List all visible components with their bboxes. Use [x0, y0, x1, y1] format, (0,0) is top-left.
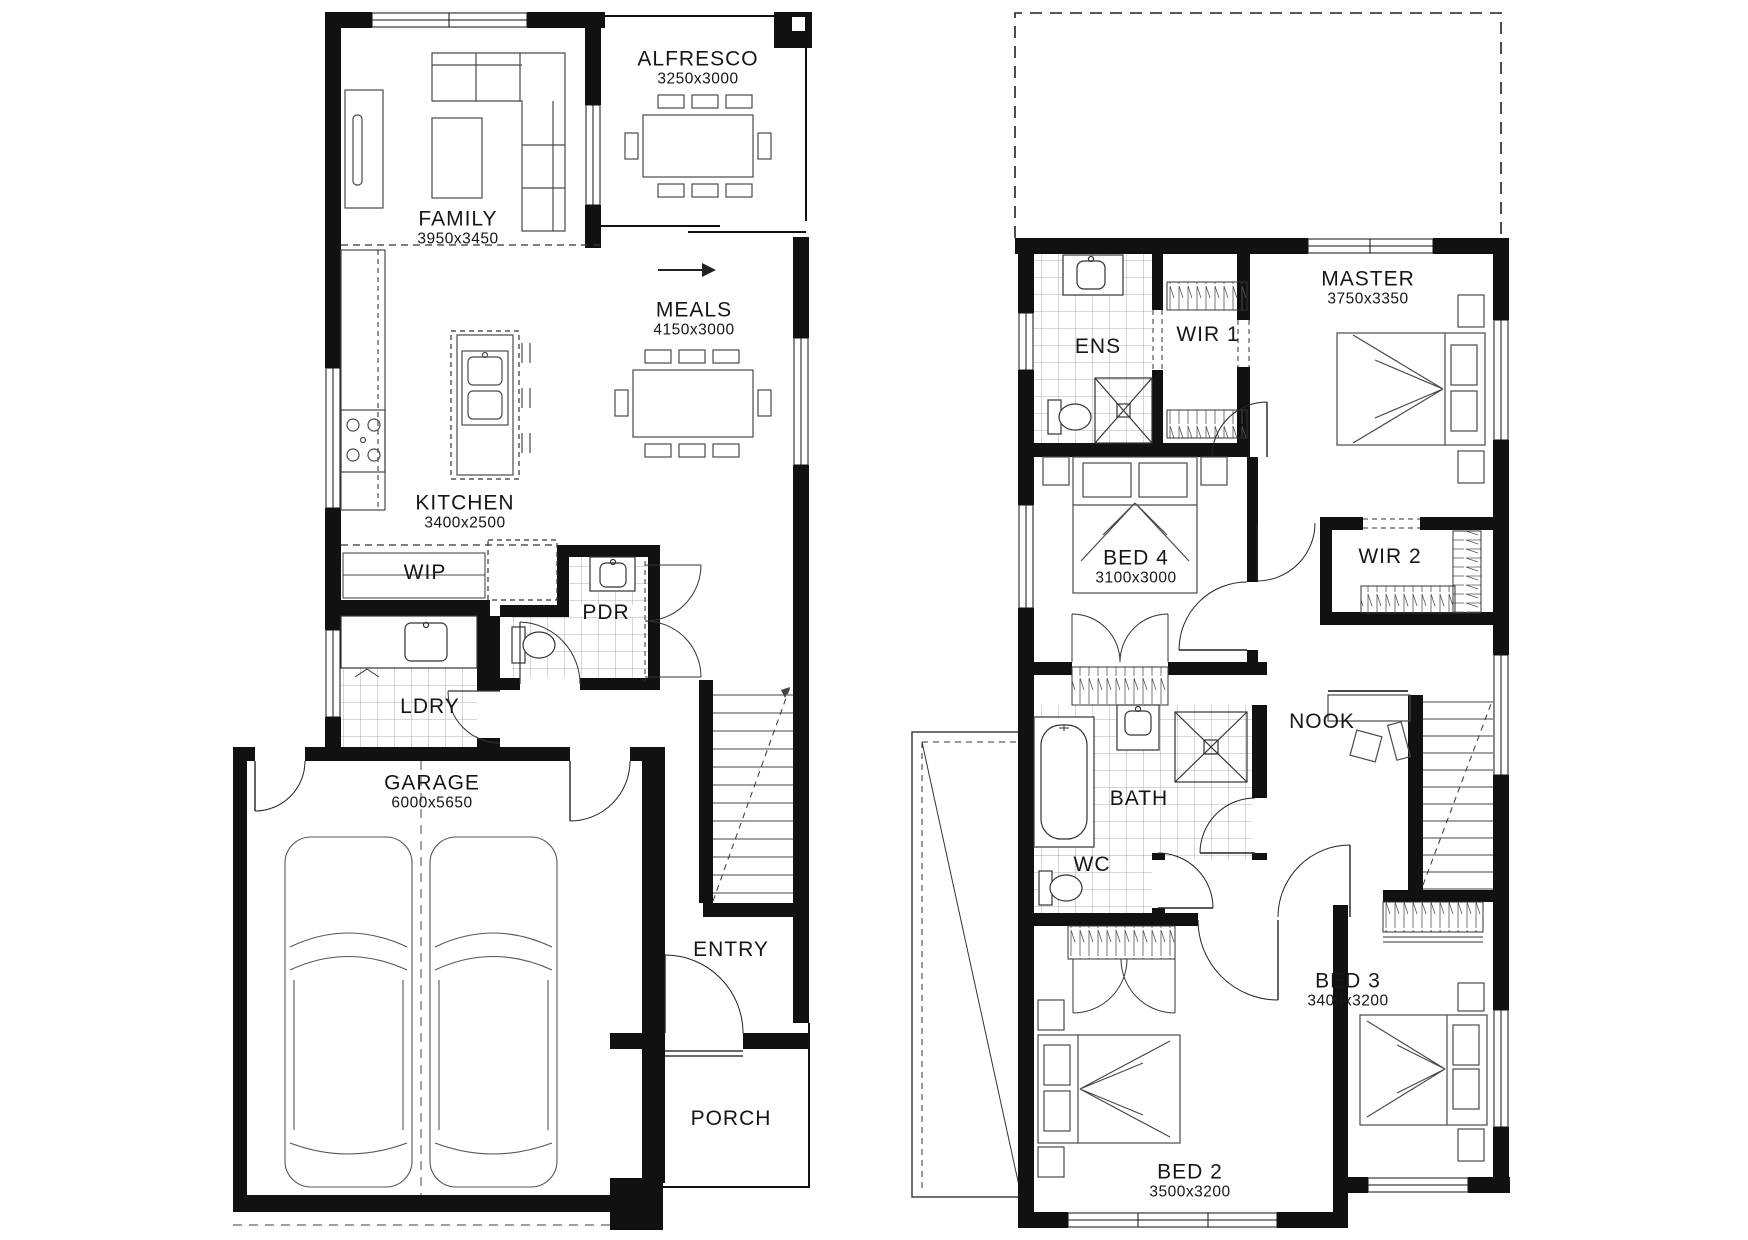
laundry-sink-icon [405, 623, 447, 662]
master-bed-icon [1337, 295, 1485, 483]
suite-hall-door [1257, 523, 1315, 581]
bathtub-icon [1034, 717, 1094, 847]
first-floor-plan [905, 5, 1525, 1235]
alfresco-table-icon [625, 95, 771, 197]
sofa-icon [432, 53, 565, 231]
ground-floor-plan [190, 5, 830, 1235]
bed4-bed-icon [1043, 457, 1227, 593]
bed4-door [1179, 582, 1247, 650]
vanity-icon [1063, 255, 1123, 295]
bed3-bed-icon [1360, 983, 1487, 1161]
wc-door [1158, 853, 1213, 908]
floorplan-canvas: ALFRESCO3250x3000 FAMILY3950x3450 MEALS4… [0, 0, 1748, 1240]
staircase [713, 687, 793, 901]
island-bench-icon [457, 335, 513, 475]
car-icon [285, 837, 412, 1187]
kitchen-furniture [341, 250, 530, 510]
coffee-table-icon [432, 118, 482, 198]
front-door [665, 955, 743, 1033]
roof-outline-upper [1015, 13, 1501, 238]
vanity-icon [1117, 705, 1159, 750]
alfresco-outline [601, 16, 806, 232]
sink-icon [462, 351, 508, 425]
meals-table-icon [615, 350, 771, 457]
family-furniture [345, 53, 565, 231]
car-icon [430, 837, 557, 1187]
bed2-door [1198, 920, 1278, 1000]
nook-desk-icon [1328, 691, 1410, 762]
entry-flow-arrow-icon [658, 263, 716, 277]
roof-outline-lower [912, 732, 1023, 1197]
garage-internal-door [570, 761, 630, 821]
tv-unit-icon [345, 90, 383, 208]
garage-side-door [255, 761, 305, 811]
staircase [1423, 702, 1493, 889]
bed2-bed-icon [1038, 1000, 1180, 1177]
vanity-icon [590, 557, 635, 591]
wip-shelf-icon [343, 553, 485, 598]
